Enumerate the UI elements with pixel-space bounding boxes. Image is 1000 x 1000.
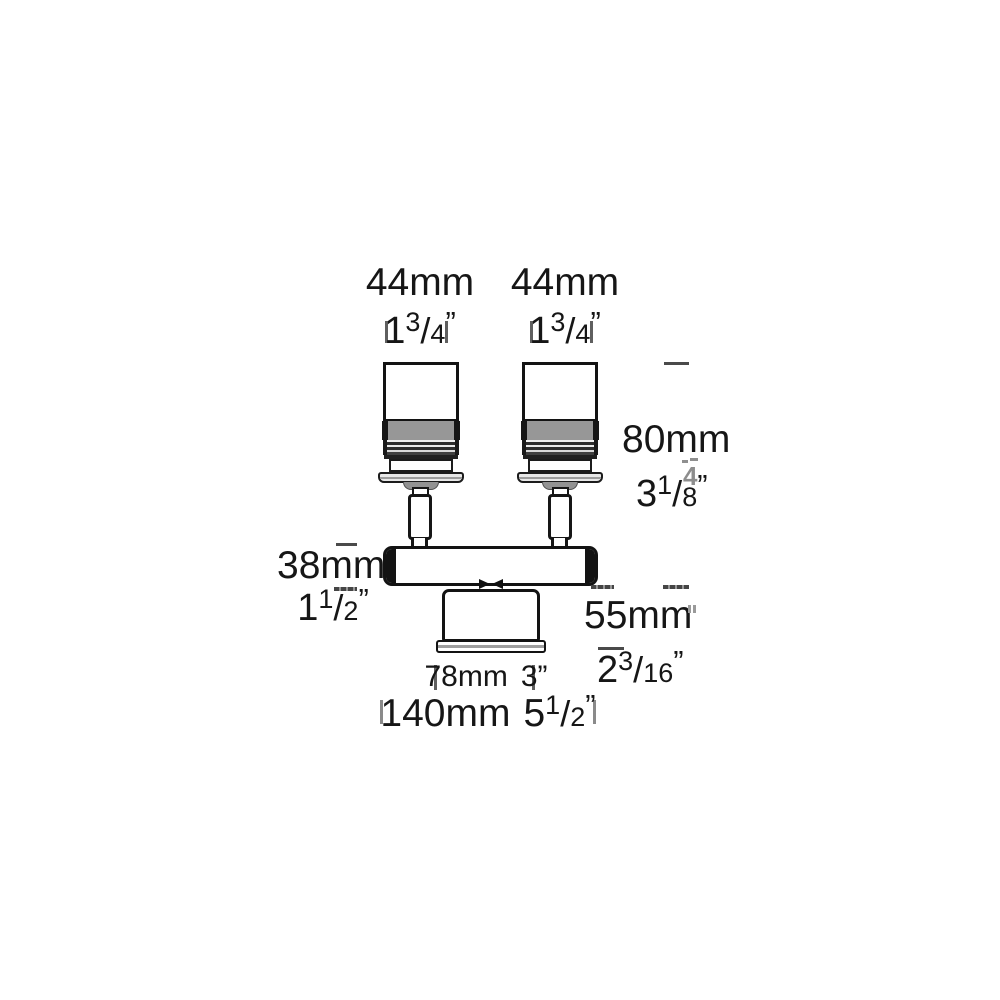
dim-head-left-mm: 44mm — [350, 263, 490, 304]
fraction-denominator: 2 — [570, 702, 585, 732]
ghost-bar-a — [688, 605, 691, 613]
head-left-gray-band — [382, 421, 460, 440]
fraction-numerator: 3 — [550, 307, 565, 337]
mounting-bar — [383, 546, 598, 586]
dim-bar-mm: 38mm — [277, 546, 385, 587]
fraction-whole: 5 — [523, 692, 545, 735]
lamp-head-right — [522, 362, 598, 490]
ghost-digit: 4 — [683, 463, 697, 489]
inch-quote: ” — [358, 582, 368, 617]
fraction-slash: / — [633, 649, 643, 690]
dim-bar-inches: 11/2” — [283, 584, 383, 629]
fraction-numerator: 3 — [405, 307, 420, 337]
tick-drop-top-b — [663, 585, 689, 589]
head-right-flange-line — [519, 477, 601, 480]
tick-height-top — [664, 362, 689, 365]
canopy-box — [442, 589, 540, 642]
fraction-numerator: 1 — [657, 470, 672, 500]
fraction-numerator: 1 — [318, 584, 333, 614]
fraction-slash: / — [565, 310, 575, 351]
dim-canopy-inch: 3” — [521, 660, 548, 693]
canopy-flange — [436, 640, 546, 653]
fraction-whole: 3 — [636, 473, 657, 515]
dim-head-right-mm: 44mm — [495, 263, 635, 304]
head-right-collar — [528, 459, 592, 472]
dim-drop-inches: 23/16” — [597, 646, 684, 691]
inch-quote: ” — [445, 305, 455, 340]
dim-head-right-inches: 13/4” — [495, 307, 635, 352]
inch-quote: ” — [585, 688, 595, 723]
fraction-whole: 2 — [597, 649, 618, 691]
ghost-bar-b — [693, 605, 696, 613]
stem-left — [408, 494, 432, 540]
lamp-head-left — [383, 362, 459, 490]
inch-quote: ” — [673, 644, 683, 679]
head-right-gray-band — [521, 421, 599, 440]
fraction-denominator: 16 — [643, 658, 673, 688]
head-left-flange-line — [380, 477, 462, 480]
canopy-flange-line — [438, 645, 544, 648]
dim-height-mm: 80mm — [622, 420, 730, 461]
fraction-slash: / — [672, 473, 682, 514]
fraction-numerator: 3 — [618, 646, 633, 676]
fraction-denominator: 4 — [430, 319, 445, 349]
fraction-whole: 1 — [529, 310, 550, 352]
inch-quote: ” — [590, 305, 600, 340]
fraction-slash: / — [333, 587, 343, 628]
bar-endcap-right — [585, 549, 595, 583]
head-left-body — [383, 362, 459, 422]
tick-drop-top-a — [591, 585, 614, 589]
head-left-fins — [383, 440, 459, 455]
inch-quote: ” — [697, 468, 707, 503]
fraction-numerator: 1 — [545, 690, 560, 720]
dim-canopy-width: 78mm3” — [420, 661, 552, 693]
dim-head-left-inches: 13/4” — [350, 307, 490, 352]
fraction-slash: / — [420, 310, 430, 351]
fraction-denominator: 2 — [343, 596, 358, 626]
dim-overall-width: 140mm51/2” — [356, 690, 620, 735]
diagram-canvas: 44mm 13/4” 44mm 13/4” 80mm 31/8” 4 38mm … — [0, 0, 1000, 1000]
dim-overall-mm: 140mm — [380, 692, 510, 735]
head-right-fins — [522, 440, 598, 455]
fraction-whole: 1 — [384, 310, 405, 352]
bar-endcap-left — [386, 549, 396, 583]
stem-right — [548, 494, 572, 540]
fraction-slash: / — [560, 693, 570, 734]
fraction-whole: 1 — [297, 587, 318, 629]
head-left-collar — [389, 459, 453, 472]
head-right-body — [522, 362, 598, 422]
clamp-arrow-right — [492, 579, 503, 589]
dim-canopy-mm: 78mm — [424, 660, 507, 693]
fraction-denominator: 4 — [575, 319, 590, 349]
dim-drop-mm: 55mm — [584, 596, 692, 637]
clamp-arrow-left — [479, 579, 490, 589]
